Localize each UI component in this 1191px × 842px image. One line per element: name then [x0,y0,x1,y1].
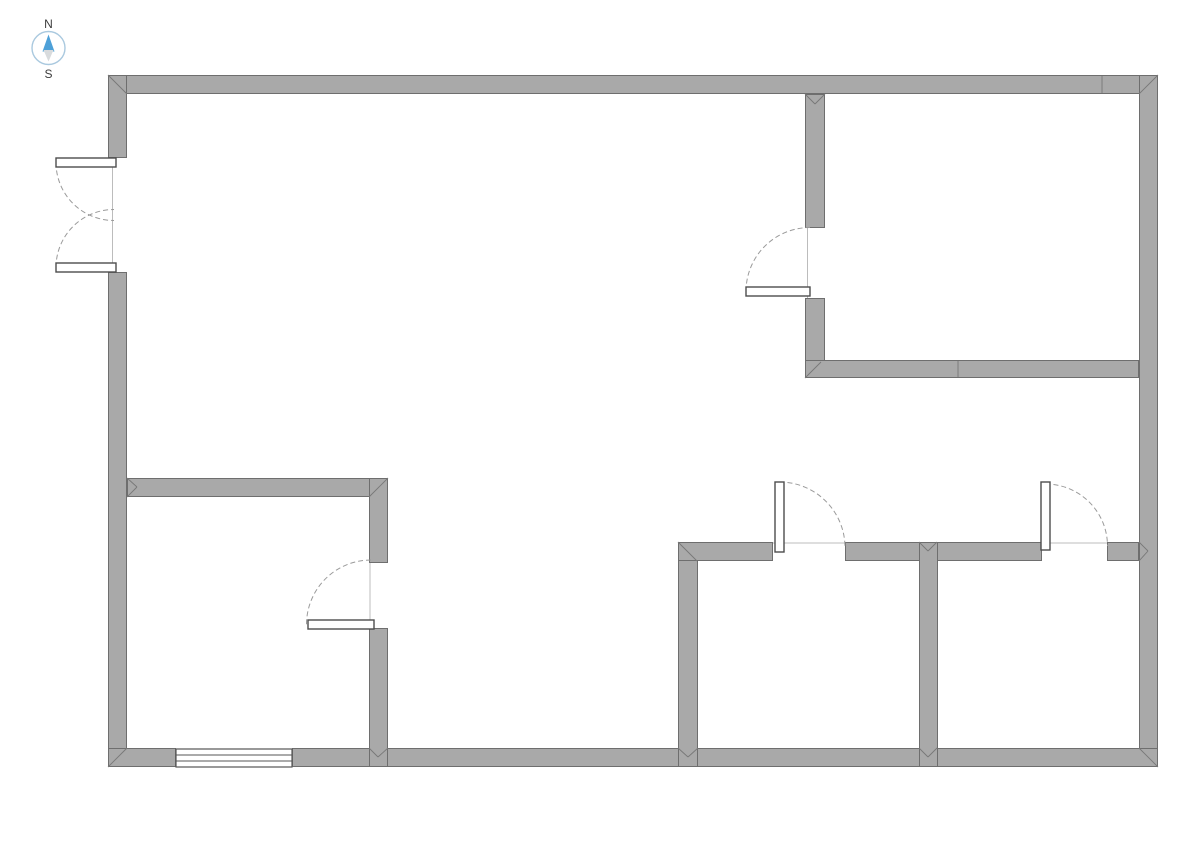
exterior-wall-left-upper [109,76,127,158]
bottom-left-room-door-leaf-1 [308,620,374,629]
bottom-left-room-wall-east-upper [370,479,388,563]
bottom-middle-room-wall-west [679,543,698,767]
bottom-middle-room-door-leaf-1 [775,482,784,552]
bottom-wall-window [176,749,292,767]
floorplan-canvas: N S [0,0,1191,842]
top-right-room-wall-south [806,361,1139,378]
bottom-wall-window-frame [176,749,292,767]
bottom-rooms-wall-north-seg2 [846,543,1042,561]
wall-joints-layer [108,75,1158,767]
walls-layer [109,76,1158,767]
exterior-wall-top [109,76,1158,94]
entry-double-door-swing-arc-1 [56,163,114,221]
bottom-middle-room-door-swing-arc-1 [780,482,846,548]
bottom-left-room-door-swing-arc-1 [307,560,372,625]
bottom-left-room-wall-north [128,479,388,497]
bottom-right-room-door-leaf-1 [1041,482,1050,550]
top-right-room-door-leaf-1 [746,287,810,296]
entry-double-door-swing-arc-2 [56,210,114,268]
bottom-rooms-dividing-wall [920,543,938,767]
exterior-wall-left-lower [109,273,127,767]
exterior-wall-right [1140,76,1158,767]
doors-and-windows-layer [56,158,1108,767]
bottom-middle-room-door [773,482,845,552]
entry-double-door-leaf-1 [56,158,116,167]
floorplan-page: N S [0,0,1191,842]
entry-double-door [56,158,116,272]
compass-north-label: N [44,17,53,31]
top-right-room-door-swing-arc-1 [746,228,810,292]
bottom-left-room-wall-east-lower [370,629,388,767]
bottom-rooms-wall-north-seg1 [679,543,773,561]
bottom-right-room-door-swing-arc-1 [1046,484,1108,546]
compass-south-label: S [44,67,52,81]
top-right-room-door [746,228,810,299]
exterior-wall-bottom-right [293,749,1158,767]
bottom-left-room-door [307,560,375,629]
top-right-room-wall-west-upper [806,95,825,228]
bottom-right-room-door [1041,482,1108,550]
entry-double-door-leaf-2 [56,263,116,272]
exterior-wall-bottom-left [109,749,176,767]
bottom-rooms-wall-north-seg3 [1108,543,1139,561]
compass-rose: N S [32,17,65,81]
